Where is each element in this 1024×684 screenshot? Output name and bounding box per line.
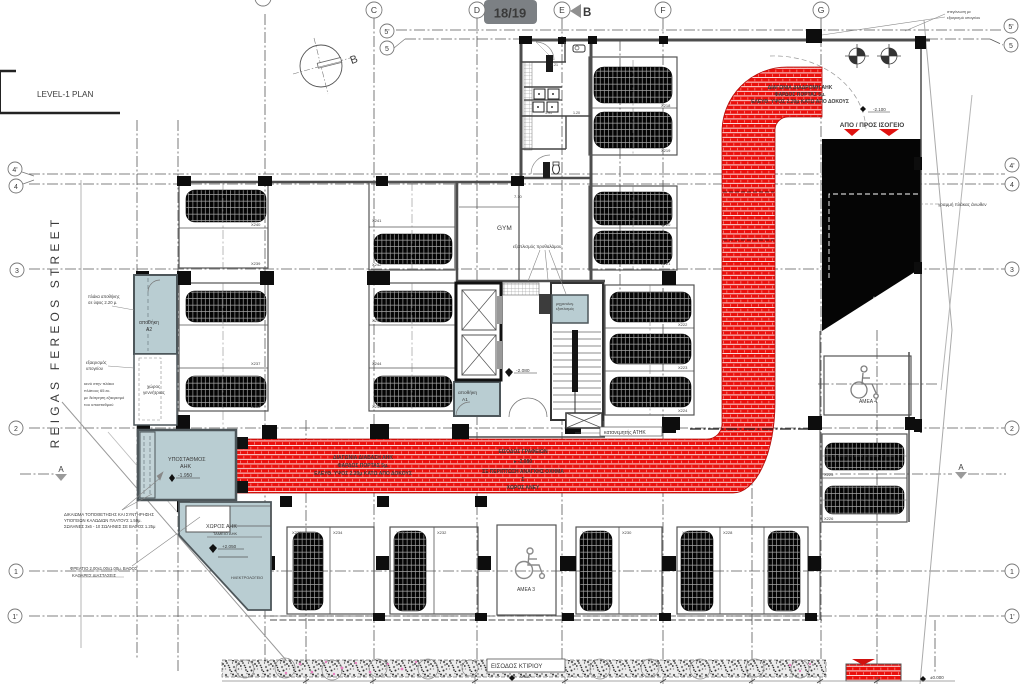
svg-text:X241: X241 — [372, 218, 382, 223]
svg-text:Σ: Σ — [521, 477, 524, 483]
svg-text:1: 1 — [14, 569, 18, 576]
svg-text:X225: X225 — [824, 472, 834, 477]
svg-text:5: 5 — [1009, 43, 1013, 50]
svg-text:-0.810: -0.810 — [519, 674, 531, 679]
svg-text:E: E — [559, 5, 565, 15]
svg-text:X235: X235 — [292, 530, 302, 535]
svg-text:5': 5' — [1008, 24, 1013, 31]
svg-text:X239: X239 — [251, 261, 261, 266]
svg-text:-2.100: -2.100 — [873, 107, 886, 112]
svg-text:ΗΛΕΚΤΡΟΛΟΓΕΙΟ: ΗΛΕΚΤΡΟΛΟΓΕΙΟ — [231, 576, 263, 580]
svg-text:ΦΑΡΔΟΣ ΠΟΡΤΑΣ 5μ.: ΦΑΡΔΟΣ ΠΟΡΤΑΣ 5μ. — [774, 92, 826, 98]
svg-text:LEVEL-1 PLAN: LEVEL-1 PLAN — [37, 90, 94, 99]
svg-text:ΥΠΟΓΕΙΩΝ ΚΑΛΩΔΙΩΝ ΠΛΑΤΟΥΣ 1.50: ΥΠΟΓΕΙΩΝ ΚΑΛΩΔΙΩΝ ΠΛΑΤΟΥΣ 1.50μ. — [64, 518, 142, 523]
svg-text:B: B — [583, 7, 591, 19]
svg-text:18/19: 18/19 — [494, 6, 527, 21]
svg-text:X228: X228 — [723, 530, 733, 535]
svg-text:σε ύψος 2.20 μ.: σε ύψος 2.20 μ. — [88, 300, 117, 305]
svg-text:X219: X219 — [661, 148, 671, 153]
svg-text:υπογείου: υπογείου — [86, 366, 104, 371]
svg-text:γραμμή πλάκας άνωθεν: γραμμή πλάκας άνωθεν — [938, 201, 987, 207]
svg-text:ΑΜΕΑ 4: ΑΜΕΑ 4 — [859, 399, 877, 405]
svg-text:X224: X224 — [678, 408, 688, 413]
svg-text:X230: X230 — [622, 530, 632, 535]
svg-text:X244: X244 — [372, 361, 382, 366]
svg-text:πλάτους 65 εκ.: πλάτους 65 εκ. — [84, 388, 110, 393]
svg-text:X240: X240 — [251, 222, 261, 227]
svg-text:αποθήκη: αποθήκη — [458, 389, 477, 396]
svg-text:+2.050: +2.050 — [222, 544, 237, 549]
svg-text:ΕΛΕΥΘ. ΥΨΟΣ 2.20μ ΚΑΤΩ ΑΠΟ ΔΟΚ: ΕΛΕΥΘ. ΥΨΟΣ 2.20μ ΚΑΤΩ ΑΠΟ ΔΟΚΟΥΣ — [314, 471, 412, 477]
svg-text:1.20: 1.20 — [573, 111, 580, 115]
svg-text:X234: X234 — [333, 530, 343, 535]
svg-text:ΧΩΡΟΣ ΑΝΕΥ: ΧΩΡΟΣ ΑΝΕΥ — [507, 485, 540, 491]
svg-text:X220: X220 — [661, 222, 671, 227]
svg-text:ΔΙΚΑΙΩΜΑ ΤΟΠΟΘΕΤΗΣΗΣ ΚΑΙ ΣΥΝΤΗ: ΔΙΚΑΙΩΜΑ ΤΟΠΟΘΕΤΗΣΗΣ ΚΑΙ ΣΥΝΤΗΡΗΣΗΣ — [64, 512, 154, 517]
svg-text:X242: X242 — [372, 262, 382, 267]
svg-text:χώρος: χώρος — [147, 383, 161, 389]
svg-text:X237: X237 — [251, 361, 261, 366]
svg-text:X233: X233 — [396, 530, 406, 535]
svg-text:ΣΩΛΗΝΕΣ 3x6 - 10 ΣΩΛΗΝΕΣ ΣΕ ΒΑ: ΣΩΛΗΝΕΣ 3x6 - 10 ΣΩΛΗΝΕΣ ΣΕ ΒΑΘΟΣ 1.25μ — [64, 524, 156, 529]
svg-text:X229: X229 — [582, 530, 592, 535]
svg-text:X218: X218 — [661, 103, 671, 108]
svg-text:4: 4 — [1010, 182, 1014, 189]
svg-text:3: 3 — [15, 268, 19, 275]
svg-text:αποθήκη: αποθήκη — [139, 319, 159, 326]
svg-text:3.21: 3.21 — [551, 63, 558, 67]
svg-text:ΔΙΑΓΩΝΙΑ ΔΙΑΔΡΟΜΗ ΑΗΚ: ΔΙΑΓΩΝΙΑ ΔΙΑΔΡΟΜΗ ΑΗΚ — [768, 85, 833, 91]
svg-text:ΤΑΜΕΙΟ ΑΗΚ: ΤΑΜΕΙΟ ΑΗΚ — [213, 531, 237, 536]
svg-text:X227: X227 — [682, 530, 692, 535]
svg-text:X226: X226 — [824, 516, 834, 521]
svg-text:ΣΕ ΠΕΡΙΠΤΩΣΗ ΑΝΑΓΚΗΣ ΟΧΗΜΑ: ΣΕ ΠΕΡΙΠΤΩΣΗ ΑΝΑΓΚΗΣ ΟΧΗΜΑ — [482, 469, 564, 475]
svg-text:X236: X236 — [251, 404, 261, 409]
svg-text:X245: X245 — [372, 404, 382, 409]
svg-text:εξοπλισμός προθαλάμου: εξοπλισμός προθαλάμου — [513, 244, 562, 249]
svg-text:κενό στην πλάκα: κενό στην πλάκα — [84, 381, 114, 386]
svg-text:ΦΡΕΑΤΙΟ 2.00x1.00x1.00μ. ΒΑΘΟΣ: ΦΡΕΑΤΙΟ 2.00x1.00x1.00μ. ΒΑΘΟΣ — [70, 566, 138, 571]
svg-text:εξοπλισμός: εξοπλισμός — [556, 307, 574, 311]
svg-text:ΑΗΚ: ΑΗΚ — [180, 464, 191, 470]
svg-text:7.10: 7.10 — [514, 194, 523, 199]
svg-text:1': 1' — [1009, 614, 1014, 621]
svg-text:X238: X238 — [251, 318, 261, 323]
svg-text:γεννήτριας: γεννήτριας — [143, 389, 166, 395]
svg-text:A: A — [958, 463, 964, 472]
svg-text:5: 5 — [385, 46, 389, 53]
svg-text:GYM: GYM — [497, 225, 512, 232]
svg-text:ΔΙΑΓΩΝΙΑ ΔΙΑΒΑΣΗ ΑΗΚ: ΔΙΑΓΩΝΙΑ ΔΙΑΒΑΣΗ ΑΗΚ — [333, 455, 393, 461]
svg-text:F: F — [660, 5, 665, 15]
svg-text:εξαερισμό υπογείου: εξαερισμό υπογείου — [947, 16, 980, 20]
svg-text:ΚΑΘΑΡΕΣ ΔΙΑΣΤΑΣΕΙΣ: ΚΑΘΑΡΕΣ ΔΙΑΣΤΑΣΕΙΣ — [72, 573, 117, 578]
svg-text:ΥΠΟΣΤΑΘΜΟΣ: ΥΠΟΣΤΑΘΜΟΣ — [168, 457, 206, 463]
svg-text:2: 2 — [14, 426, 18, 433]
svg-text:X222: X222 — [678, 322, 688, 327]
svg-text:του υποσταθμού: του υποσταθμού — [84, 402, 113, 407]
svg-text:εξαερισμός: εξαερισμός — [86, 360, 107, 365]
svg-text:X232: X232 — [437, 530, 447, 535]
svg-text:4': 4' — [12, 167, 17, 174]
svg-text:X243: X243 — [372, 318, 382, 323]
svg-text:▸ -2.080: ▸ -2.080 — [513, 459, 532, 465]
svg-text:Α2: Α2 — [146, 327, 152, 333]
svg-text:X231: X231 — [770, 530, 780, 535]
svg-text:με διάτρηση εξαερισμό: με διάτρηση εξαερισμό — [84, 395, 125, 400]
svg-text:ΦΑΡΔΟΣ ΠΟΡΤΑΣ 5μ.: ΦΑΡΔΟΣ ΠΟΡΤΑΣ 5μ. — [337, 463, 389, 469]
svg-text:A: A — [58, 465, 64, 474]
svg-text:C: C — [371, 5, 377, 15]
svg-text:5': 5' — [384, 29, 389, 36]
svg-text:3: 3 — [1010, 267, 1014, 274]
svg-text:ΑΜΕΑ 3: ΑΜΕΑ 3 — [517, 587, 535, 593]
svg-text:ΕΙΣΟΔΟΣ ΚΤΙΡΙΟΥ: ΕΙΣΟΔΟΣ ΚΤΙΡΙΟΥ — [491, 664, 542, 670]
svg-text:ΑΠΟ / ΠΡΟΣ ΙΣΟΓΕΙΟ: ΑΠΟ / ΠΡΟΣ ΙΣΟΓΕΙΟ — [840, 122, 904, 129]
svg-text:1': 1' — [12, 614, 17, 621]
svg-text:1.91: 1.91 — [545, 111, 552, 115]
svg-text:ΕΛΕΥΘ. ΥΨΟΣ 2.20μ ΚΑΤΩ ΑΠΟ ΔΟΚ: ΕΛΕΥΘ. ΥΨΟΣ 2.20μ ΚΑΤΩ ΑΠΟ ΔΟΚΟΥΣ — [751, 99, 849, 105]
svg-text:ΧΩΡΟΣ ΑΗΚ: ΧΩΡΟΣ ΑΗΚ — [206, 524, 237, 530]
svg-text:X221: X221 — [661, 261, 671, 266]
svg-text:πλάκα αποθήκης: πλάκα αποθήκης — [88, 294, 120, 299]
svg-text:REIGAS FEREOS STREET: REIGAS FEREOS STREET — [48, 216, 62, 449]
svg-text:1: 1 — [1010, 569, 1014, 576]
svg-text:ΕΙΣΟΔΟΣ ΓΡΑΦΕΙΩΝ: ΕΙΣΟΔΟΣ ΓΡΑΦΕΙΩΝ — [498, 449, 548, 455]
svg-text:±0.000: ±0.000 — [930, 675, 944, 680]
svg-text:κατανεμητής ΑΤΗΚ: κατανεμητής ΑΤΗΚ — [604, 429, 646, 436]
svg-text:στεγάνωση με: στεγάνωση με — [947, 10, 971, 14]
svg-text:4: 4 — [14, 184, 18, 191]
svg-text:G: G — [818, 5, 825, 15]
svg-text:D: D — [474, 5, 480, 15]
svg-text:4': 4' — [1009, 163, 1014, 170]
svg-text:2: 2 — [1010, 426, 1014, 433]
svg-text:μηχανολογ.: μηχανολογ. — [556, 302, 574, 306]
svg-text:X223: X223 — [678, 365, 688, 370]
